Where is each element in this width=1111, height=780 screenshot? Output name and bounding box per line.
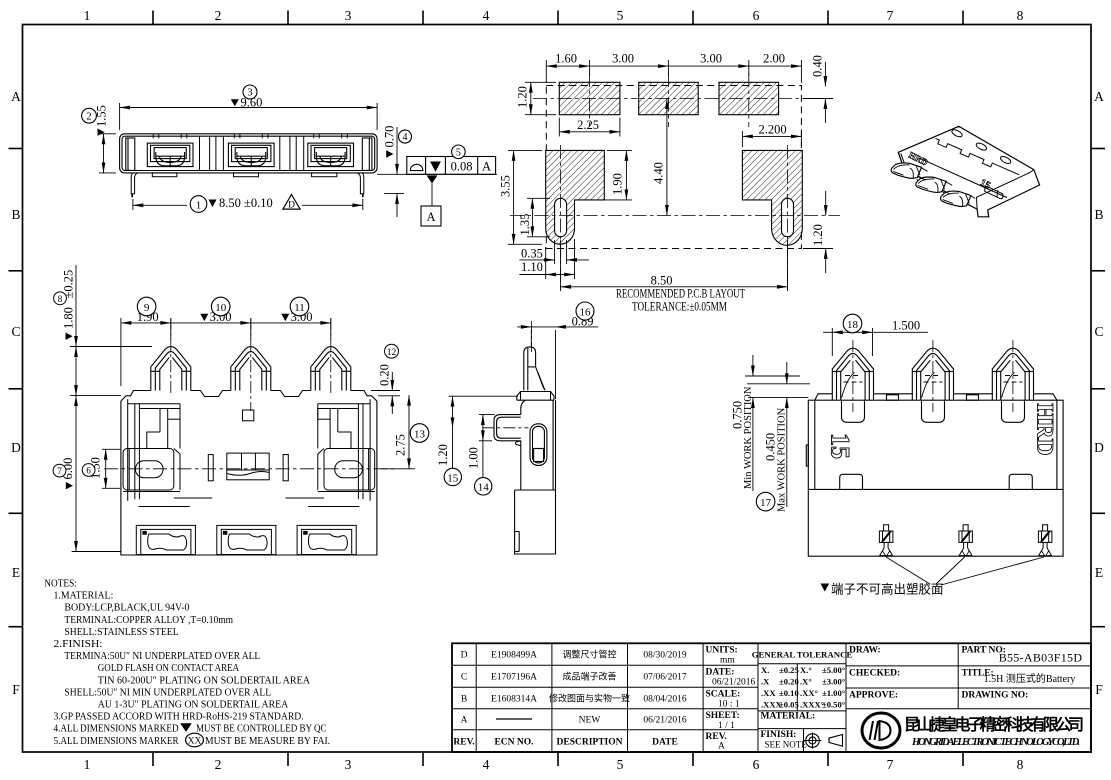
svg-text:5: 5 bbox=[617, 8, 624, 23]
svg-text:4: 4 bbox=[483, 757, 490, 772]
svg-text:2.00: 2.00 bbox=[763, 52, 785, 66]
svg-text:5: 5 bbox=[617, 757, 624, 772]
svg-text:±0.50°: ±0.50° bbox=[822, 700, 846, 710]
svg-text:BODY:LCP,BLACK,UL 94V-0: BODY:LCP,BLACK,UL 94V-0 bbox=[64, 602, 190, 614]
svg-text:SHELL:STAINLESS STEEL: SHELL:STAINLESS STEEL bbox=[64, 626, 178, 638]
svg-text:REV.: REV. bbox=[706, 732, 727, 742]
svg-text:1.80: 1.80 bbox=[62, 307, 76, 329]
svg-text:15: 15 bbox=[826, 433, 855, 459]
svg-text:A: A bbox=[11, 89, 21, 104]
svg-text:.XX: .XX bbox=[761, 688, 776, 698]
svg-text:mm: mm bbox=[720, 656, 735, 666]
svg-text:A: A bbox=[482, 160, 491, 174]
svg-text:±0.20: ±0.20 bbox=[779, 677, 799, 687]
svg-text:8: 8 bbox=[1017, 8, 1024, 23]
svg-text:5: 5 bbox=[456, 147, 461, 158]
svg-text:B: B bbox=[11, 207, 20, 222]
svg-text:08/30/2019: 08/30/2019 bbox=[643, 651, 687, 661]
svg-text:E1608314A: E1608314A bbox=[491, 695, 537, 705]
svg-text:15: 15 bbox=[447, 472, 459, 484]
svg-text:0.40: 0.40 bbox=[811, 55, 825, 77]
svg-text:XX: XX bbox=[188, 737, 202, 747]
svg-text:5.ALL DIMENSIONS MARKER: 5.ALL DIMENSIONS MARKER bbox=[54, 735, 180, 747]
svg-text:TIN 60-200U″ PLATING ON SOLDER: TIN 60-200U″ PLATING ON SOLDERTAIL AREA bbox=[98, 674, 310, 686]
svg-text:SHELL:50U″ NI MIN UNDERPLATED: SHELL:50U″ NI MIN UNDERPLATED OVER ALL bbox=[64, 686, 271, 698]
svg-text:F: F bbox=[1095, 682, 1103, 697]
svg-text:3.00: 3.00 bbox=[700, 52, 722, 66]
svg-text:1.MATERIAL:: 1.MATERIAL: bbox=[54, 590, 114, 602]
svg-text:1: 1 bbox=[196, 199, 202, 211]
svg-text:TERMINA:50U″ NI UNDERPLATED OV: TERMINA:50U″ NI UNDERPLATED OVER ALL bbox=[64, 650, 260, 662]
svg-text:4: 4 bbox=[403, 132, 408, 143]
svg-text:SHEET:: SHEET: bbox=[706, 711, 740, 721]
svg-text:DRAW:: DRAW: bbox=[849, 646, 881, 656]
svg-text:TERMINAL:COPPER ALLOY ,T=0.10m: TERMINAL:COPPER ALLOY ,T=0.10mm bbox=[64, 614, 233, 626]
svg-text:±0.05: ±0.05 bbox=[779, 700, 799, 710]
svg-text:3.00: 3.00 bbox=[612, 52, 634, 66]
svg-text:NOTES:: NOTES: bbox=[44, 578, 77, 590]
svg-text:ECN NO.: ECN NO. bbox=[494, 738, 533, 748]
svg-text:16: 16 bbox=[580, 306, 592, 318]
svg-text:2: 2 bbox=[215, 8, 222, 23]
svg-text:07/06/2017: 07/06/2017 bbox=[643, 673, 687, 683]
svg-text:MUST BE CONTROLLED BY QC: MUST BE CONTROLLED BY QC bbox=[196, 723, 327, 735]
svg-text:06/21/2016: 06/21/2016 bbox=[712, 678, 756, 688]
svg-text:NEW: NEW bbox=[579, 716, 601, 726]
svg-text:.X: .X bbox=[761, 677, 770, 687]
svg-text:14: 14 bbox=[478, 482, 490, 494]
svg-text:3: 3 bbox=[247, 88, 252, 99]
svg-text:GENERAL TOLERANCE: GENERAL TOLERANCE bbox=[752, 650, 853, 660]
svg-text:B: B bbox=[1094, 207, 1103, 222]
svg-text:08/04/2016: 08/04/2016 bbox=[643, 695, 687, 705]
svg-text:0.70: 0.70 bbox=[383, 126, 397, 148]
svg-text:CHECKED:: CHECKED: bbox=[849, 669, 900, 679]
svg-text:8: 8 bbox=[58, 294, 63, 304]
svg-text:1: 1 bbox=[84, 757, 91, 772]
svg-text:C: C bbox=[461, 673, 467, 683]
svg-text:±0.10: ±0.10 bbox=[779, 688, 799, 698]
svg-text:DESCRIPTION: DESCRIPTION bbox=[557, 738, 623, 748]
svg-text:D: D bbox=[1094, 440, 1104, 455]
svg-text:昆山捷皇电子精密科技有限公司: 昆山捷皇电子精密科技有限公司 bbox=[904, 715, 1084, 734]
svg-text:REV.: REV. bbox=[453, 738, 474, 748]
svg-text:GOLD FLASH ON CONTACT AREA: GOLD FLASH ON CONTACT AREA bbox=[98, 662, 240, 674]
svg-text:A: A bbox=[461, 716, 468, 726]
svg-text:MUST BE MEASURE BY FAI.: MUST BE MEASURE BY FAI. bbox=[205, 735, 330, 747]
svg-text:4.ALL DIMENSIONS MARKED: 4.ALL DIMENSIONS MARKED bbox=[54, 723, 179, 735]
svg-text:3: 3 bbox=[345, 8, 352, 23]
svg-text:修改图面与实物一致: 修改图面与实物一致 bbox=[549, 693, 630, 704]
svg-text:DRAWING NO:: DRAWING NO: bbox=[962, 691, 1029, 701]
svg-text:6: 6 bbox=[753, 757, 760, 772]
svg-text:6: 6 bbox=[753, 8, 760, 23]
svg-text:17: 17 bbox=[760, 497, 772, 509]
svg-text:8.50: 8.50 bbox=[651, 274, 673, 288]
svg-text:7: 7 bbox=[887, 8, 894, 23]
svg-text:8: 8 bbox=[1017, 757, 1024, 772]
svg-text:A: A bbox=[718, 742, 725, 752]
svg-text:A: A bbox=[426, 210, 435, 224]
svg-text:1.500: 1.500 bbox=[892, 319, 920, 333]
svg-text:12: 12 bbox=[387, 348, 397, 358]
svg-text:10 : 1: 10 : 1 bbox=[718, 700, 740, 710]
svg-text:±3.00°: ±3.00° bbox=[822, 677, 846, 687]
svg-text:1 / 1: 1 / 1 bbox=[718, 721, 735, 731]
svg-text:0.08: 0.08 bbox=[451, 160, 473, 174]
svg-text:B: B bbox=[461, 695, 467, 705]
svg-text:DATE:: DATE: bbox=[706, 668, 735, 678]
svg-text:E1707196A: E1707196A bbox=[491, 673, 537, 683]
svg-text:Min WORK POSITION: Min WORK POSITION bbox=[743, 386, 754, 489]
svg-text:APPROVE:: APPROVE: bbox=[849, 691, 898, 701]
svg-text:FINISH:: FINISH: bbox=[761, 730, 797, 740]
svg-text:8.50 ±0.10: 8.50 ±0.10 bbox=[219, 196, 273, 210]
svg-text:E1908499A: E1908499A bbox=[491, 651, 537, 661]
svg-text:HRD: HRD bbox=[1032, 403, 1058, 455]
svg-text:端子不可高出塑胶面: 端子不可高出塑胶面 bbox=[831, 582, 944, 597]
svg-text:X.°: X.° bbox=[800, 665, 812, 675]
svg-text:E: E bbox=[12, 565, 20, 580]
svg-text:F: F bbox=[12, 682, 20, 697]
svg-text:2: 2 bbox=[86, 112, 91, 123]
svg-text:2.FINISH:: 2.FINISH: bbox=[54, 638, 103, 650]
svg-text:C: C bbox=[1094, 324, 1103, 339]
svg-text:1.5H 测压式的Battery: 1.5H 测压式的Battery bbox=[984, 672, 1076, 685]
svg-text:UNITS:: UNITS: bbox=[706, 646, 738, 656]
svg-text:±5.00°: ±5.00° bbox=[822, 665, 846, 675]
svg-text:1.20: 1.20 bbox=[811, 224, 825, 246]
svg-text:11: 11 bbox=[294, 302, 305, 314]
svg-text:DATE: DATE bbox=[652, 738, 678, 748]
svg-text:SCALE:: SCALE: bbox=[706, 690, 741, 700]
svg-text:D: D bbox=[11, 440, 21, 455]
svg-text:1: 1 bbox=[84, 8, 91, 23]
svg-text:10: 10 bbox=[215, 302, 227, 314]
svg-text:X.: X. bbox=[761, 665, 769, 675]
svg-text:HONGRIDA ELECTRONIC TECHNOLOGY: HONGRIDA ELECTRONIC TECHNOLOGY CO,LTD. bbox=[911, 737, 1080, 748]
svg-text:成品端子改善: 成品端子改善 bbox=[562, 671, 616, 682]
svg-text:0.35: 0.35 bbox=[521, 247, 543, 261]
svg-text:1.35: 1.35 bbox=[518, 214, 532, 236]
svg-text:D: D bbox=[288, 200, 295, 210]
svg-text:4: 4 bbox=[483, 8, 490, 23]
svg-text:MATERIAL:: MATERIAL: bbox=[761, 712, 816, 722]
svg-text:06/21/2016: 06/21/2016 bbox=[643, 716, 687, 726]
svg-text:2.25: 2.25 bbox=[577, 118, 599, 132]
svg-text:C: C bbox=[11, 324, 20, 339]
svg-text:D: D bbox=[461, 651, 468, 661]
svg-text:RECOMMENDED P.C.B LAYOUT: RECOMMENDED P.C.B LAYOUT bbox=[616, 287, 745, 301]
svg-text:2.75: 2.75 bbox=[394, 434, 408, 456]
svg-text:SEE NOTE: SEE NOTE bbox=[765, 740, 808, 750]
svg-text:TOLERANCE:±0.05MM: TOLERANCE:±0.05MM bbox=[632, 300, 727, 314]
svg-text:1.90: 1.90 bbox=[611, 173, 625, 195]
svg-text:1.10: 1.10 bbox=[521, 260, 543, 274]
svg-text:3: 3 bbox=[345, 757, 352, 772]
svg-text:18: 18 bbox=[847, 319, 859, 331]
svg-text:.XX°: .XX° bbox=[800, 688, 819, 698]
svg-text:3.55: 3.55 bbox=[498, 175, 512, 197]
svg-text:调整尺寸管控: 调整尺寸管控 bbox=[562, 649, 616, 660]
svg-text:3.GP PASSED ACCORD WITH HRD-Ro: 3.GP PASSED ACCORD WITH HRD-RoHS-219 STA… bbox=[54, 711, 304, 723]
svg-text:2: 2 bbox=[215, 757, 222, 772]
svg-text:7: 7 bbox=[57, 466, 62, 476]
svg-text:1.20: 1.20 bbox=[436, 444, 450, 466]
svg-text:4.40: 4.40 bbox=[652, 162, 666, 184]
svg-text:±0.25: ±0.25 bbox=[779, 665, 799, 675]
svg-text:±1.00°: ±1.00° bbox=[822, 688, 846, 698]
svg-text:6: 6 bbox=[86, 466, 91, 476]
svg-text:1.00: 1.00 bbox=[466, 447, 480, 469]
svg-text:2.200: 2.200 bbox=[758, 123, 786, 137]
svg-text:Max WORK POSITION: Max WORK POSITION bbox=[777, 407, 788, 512]
svg-text:B55-AB03F15D: B55-AB03F15D bbox=[999, 651, 1083, 665]
svg-text:1.20: 1.20 bbox=[516, 86, 530, 108]
svg-text:0.20: 0.20 bbox=[378, 364, 392, 386]
svg-text:.X°: .X° bbox=[800, 677, 812, 687]
svg-text:13: 13 bbox=[414, 428, 426, 440]
svg-text:0.450: 0.450 bbox=[764, 433, 778, 461]
svg-text:9: 9 bbox=[144, 302, 150, 314]
svg-text:7: 7 bbox=[887, 757, 894, 772]
svg-text:E: E bbox=[1095, 565, 1103, 580]
svg-text:A: A bbox=[1094, 89, 1104, 104]
svg-text:AU 1-3U″ PLATING ON SOLDERTAIL: AU 1-3U″ PLATING ON SOLDERTAIL AREA bbox=[98, 699, 289, 711]
svg-text:1.60: 1.60 bbox=[555, 52, 577, 66]
